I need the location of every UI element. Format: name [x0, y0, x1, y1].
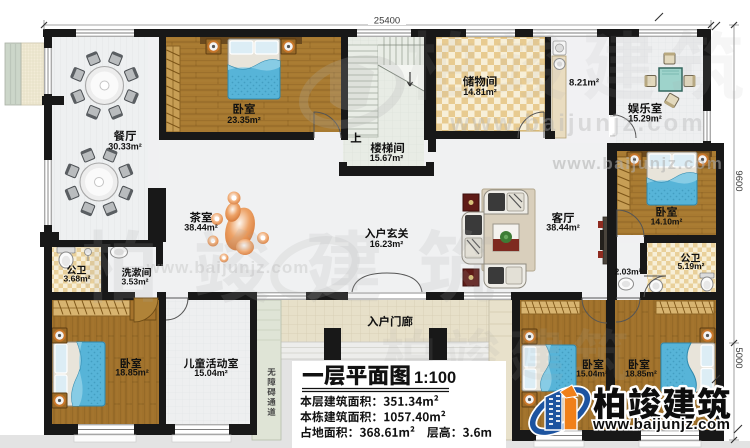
svg-text:5.19m²: 5.19m² [678, 261, 705, 271]
svg-text:14.10m²: 14.10m² [651, 217, 683, 227]
svg-text:www.baijunjz.com: www.baijunjz.com [592, 416, 730, 433]
svg-text:15.04m²: 15.04m² [576, 369, 608, 379]
svg-text:18.85m²: 18.85m² [625, 369, 657, 379]
svg-text:1:100: 1:100 [414, 369, 456, 387]
svg-text:38.44m²: 38.44m² [546, 223, 580, 233]
svg-text:14.81m²: 14.81m² [463, 87, 497, 97]
svg-text:30.33m²: 30.33m² [108, 142, 142, 152]
svg-text:3.53m²: 3.53m² [122, 277, 149, 287]
svg-text:15.29m²: 15.29m² [628, 114, 662, 124]
svg-text:2.03m²: 2.03m² [615, 267, 642, 277]
svg-text:16.23m²: 16.23m² [370, 239, 404, 249]
svg-text:www.baijunjz.com: www.baijunjz.com [449, 110, 705, 137]
svg-text:www.baijunjz.com: www.baijunjz.com [146, 258, 310, 277]
svg-text:23.35m²: 23.35m² [227, 115, 261, 125]
svg-text:38.44m²: 38.44m² [184, 223, 218, 233]
svg-text:15.67m²: 15.67m² [370, 153, 404, 163]
svg-text:15.04m²: 15.04m² [194, 368, 228, 378]
svg-text:5000: 5000 [733, 347, 744, 368]
svg-text:www.baijunjz.com: www.baijunjz.com [552, 154, 724, 173]
svg-text:25400: 25400 [374, 16, 400, 27]
svg-text:8.21m²: 8.21m² [569, 78, 599, 89]
svg-text:18.85m²: 18.85m² [115, 368, 149, 378]
svg-text:3.68m²: 3.68m² [64, 274, 91, 284]
svg-text:9600: 9600 [733, 170, 744, 191]
